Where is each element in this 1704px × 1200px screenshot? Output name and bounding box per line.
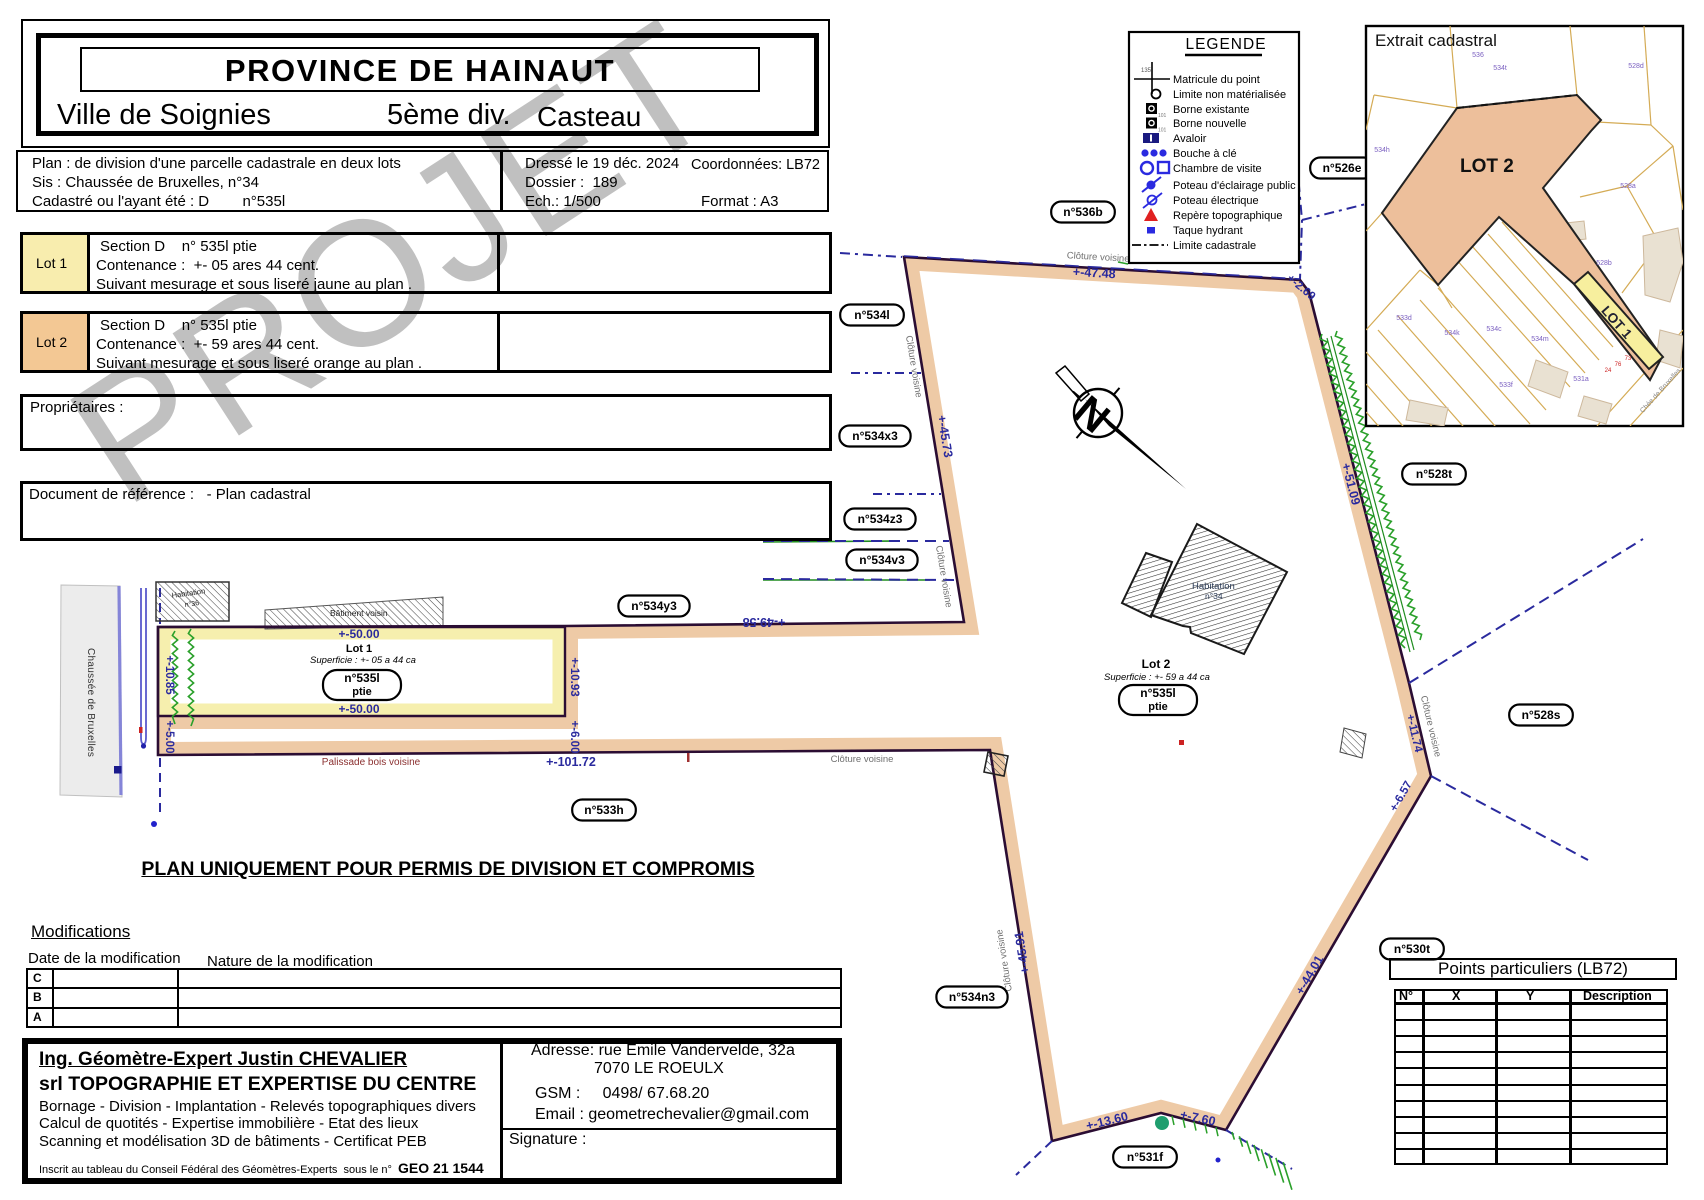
svg-text:LOT 2: LOT 2 [1460, 156, 1514, 177]
svg-text:Poteau électrique: Poteau électrique [1173, 195, 1259, 207]
svg-text:533d: 533d [1396, 315, 1412, 322]
svg-text:n°534l: n°534l [854, 308, 889, 322]
svg-text:+-10.93: +-10.93 [568, 657, 580, 696]
svg-text:536: 536 [1472, 52, 1484, 59]
svg-text:ptie: ptie [1148, 701, 1168, 713]
svg-text:Extrait cadastral: Extrait cadastral [1375, 31, 1497, 50]
svg-text:Poteau d'éclairage public: Poteau d'éclairage public [1173, 180, 1296, 192]
svg-text:Clôture voisine: Clôture voisine [933, 545, 954, 609]
svg-text:Borne nouvelle: Borne nouvelle [1173, 118, 1246, 130]
svg-text:Chaussée de Bruxelles: Chaussée de Bruxelles [85, 648, 96, 757]
svg-text:n°533h: n°533h [584, 803, 623, 817]
svg-text:n°534z3: n°534z3 [858, 512, 903, 526]
svg-text:76: 76 [1615, 362, 1622, 368]
svg-text:ptie: ptie [352, 686, 372, 698]
svg-text:n°536b: n°536b [1063, 205, 1102, 219]
svg-text:n°534v3: n°534v3 [859, 553, 905, 567]
svg-text:n°528s: n°528s [1522, 708, 1561, 722]
svg-text:LEGENDE: LEGENDE [1185, 36, 1266, 53]
svg-text:Superficie : +- 05 a 44 ca: Superficie : +- 05 a 44 ca [310, 655, 416, 666]
svg-text:531a: 531a [1573, 376, 1589, 383]
svg-text:534m: 534m [1531, 336, 1549, 343]
svg-text:n°34: n°34 [1205, 591, 1223, 601]
svg-text:n°535l: n°535l [1140, 686, 1175, 700]
svg-text:Lot 1: Lot 1 [346, 643, 372, 655]
svg-text:n°526e: n°526e [1323, 161, 1362, 175]
svg-text:n°528t: n°528t [1416, 467, 1452, 481]
svg-text:n°530t: n°530t [1394, 942, 1430, 956]
svg-text:Taque hydrant: Taque hydrant [1173, 225, 1243, 237]
svg-text:n°534y3: n°534y3 [631, 599, 677, 613]
svg-text:24: 24 [1605, 368, 1612, 374]
svg-text:Limite non matérialisée: Limite non matérialisée [1173, 89, 1286, 101]
svg-text:Superficie : +- 59 a 44 ca: Superficie : +- 59 a 44 ca [1104, 672, 1210, 683]
svg-text:73: 73 [1625, 356, 1632, 362]
svg-text:n°534x3: n°534x3 [852, 429, 898, 443]
svg-text:Repère topographique: Repère topographique [1173, 210, 1282, 222]
svg-text:+-44.01: +-44.01 [1293, 953, 1327, 997]
svg-text:+-13.60: +-13.60 [1085, 1109, 1130, 1133]
svg-text:n°531f: n°531f [1127, 1150, 1164, 1164]
svg-text:Avaloir: Avaloir [1173, 133, 1207, 145]
svg-text:+-10.85: +-10.85 [163, 655, 175, 695]
svg-text:Lot 2: Lot 2 [1142, 657, 1171, 671]
svg-text:528d: 528d [1628, 63, 1644, 70]
svg-text:+-50.00: +-50.00 [338, 702, 379, 716]
svg-text:534h: 534h [1374, 147, 1390, 154]
svg-text:101: 101 [1158, 113, 1167, 119]
svg-text:534t: 534t [1493, 65, 1507, 72]
svg-text:+-50.00: +-50.00 [338, 627, 379, 641]
svg-text:534c: 534c [1486, 326, 1502, 333]
svg-text:+-6.00: +-6.00 [568, 721, 580, 754]
svg-text:Palissade bois voisine: Palissade bois voisine [322, 757, 421, 768]
svg-text:n°534n3: n°534n3 [949, 990, 995, 1004]
svg-text:Bouche à clé: Bouche à clé [1173, 148, 1237, 160]
svg-text:Chambre de visite: Chambre de visite [1173, 163, 1262, 175]
svg-text:Limite cadastrale: Limite cadastrale [1173, 240, 1256, 252]
svg-text:Borne existante: Borne existante [1173, 104, 1249, 116]
svg-text:135: 135 [1141, 68, 1152, 74]
svg-text:+-49.58: +-49.58 [743, 615, 786, 629]
svg-text:n°535l: n°535l [344, 671, 379, 685]
svg-text:Bâtiment voisin: Bâtiment voisin [330, 608, 388, 618]
svg-text:+-101.72: +-101.72 [546, 755, 596, 769]
svg-text:101: 101 [1158, 128, 1167, 134]
svg-text:528a: 528a [1620, 183, 1636, 190]
svg-text:+-5.00: +-5.00 [163, 721, 175, 754]
svg-text:Matricule du point: Matricule du point [1173, 74, 1260, 86]
svg-text:Clôture voisine: Clôture voisine [831, 754, 894, 765]
svg-text:528b: 528b [1596, 260, 1612, 267]
svg-text:534k: 534k [1444, 330, 1460, 337]
svg-text:533f: 533f [1499, 382, 1513, 389]
svg-text:+-47.48: +-47.48 [1072, 265, 1116, 281]
